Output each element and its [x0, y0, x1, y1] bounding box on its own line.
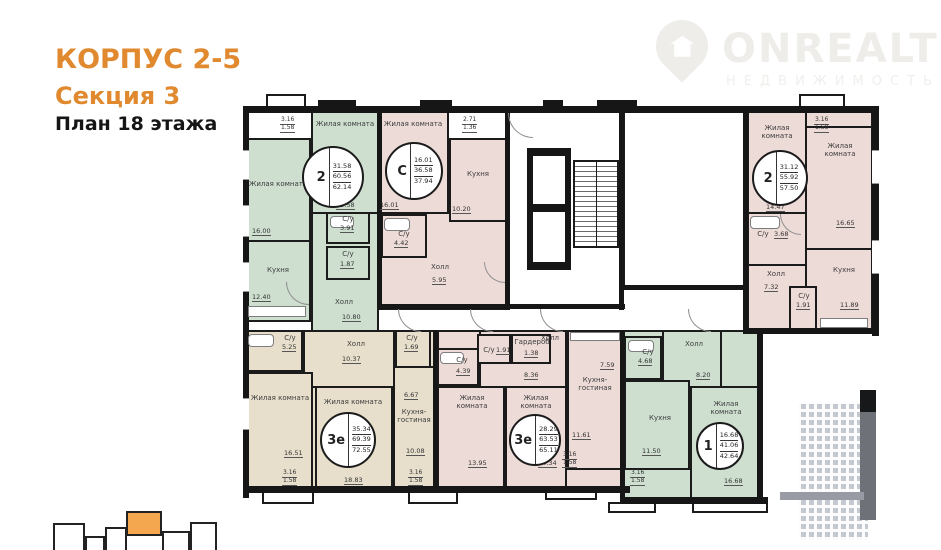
room-area: 10.37	[342, 356, 361, 364]
room-label: Холл	[532, 334, 568, 342]
area-mid: 55.92	[780, 173, 799, 183]
keyplan-outline	[190, 522, 217, 550]
room-area: 1.38	[524, 350, 538, 358]
room-kitchen-living	[567, 330, 623, 470]
wall	[619, 106, 624, 310]
window	[243, 150, 249, 180]
window	[872, 240, 879, 274]
room-label: Холл	[758, 270, 794, 278]
room-area: 8.36	[524, 372, 538, 380]
room-area: 4.42	[394, 240, 408, 248]
apartment-areas: 31.58 60.56 62.14	[330, 162, 352, 192]
wall-right	[872, 106, 879, 336]
apartment-type: 3е	[512, 416, 536, 464]
window	[243, 398, 249, 430]
dimension-label: 3.161.58	[562, 452, 577, 468]
keyplan-outline	[53, 523, 85, 550]
room-area: 16.01	[380, 202, 399, 210]
wall	[757, 334, 763, 504]
apartment-badge: 3е 35.34 69.39 72.55	[320, 412, 376, 468]
apartment-areas: 16.68 41.06 42.64	[717, 431, 739, 461]
dimension-label: 3.161.58	[280, 117, 295, 133]
room-label: С/у	[390, 230, 418, 238]
area-living: 35.34	[352, 425, 371, 435]
room-area: 1.87	[340, 261, 354, 269]
apartment-badge: 1 16.68 41.06 42.64	[696, 422, 744, 470]
room-label: Кухня	[458, 170, 498, 178]
page-title: КОРПУС 2-5	[55, 44, 241, 75]
keyplan-outline	[162, 531, 190, 550]
logo-house-icon	[670, 36, 694, 57]
kitchen-counter-icon	[570, 332, 620, 341]
room-label: Кухня	[247, 266, 309, 274]
bathtub-icon	[248, 334, 274, 347]
room-label: Холл	[676, 340, 712, 348]
apartment-type: 3е	[325, 414, 349, 466]
area-living: 16.68	[720, 431, 739, 441]
room-area: 16.65	[836, 220, 855, 228]
window	[872, 150, 879, 184]
room-label: Жилая комната	[749, 124, 805, 140]
dimension-label: 3.161.58	[408, 470, 423, 486]
room-area: 18.83	[344, 477, 363, 485]
room-label: Кухня-гостиная	[570, 376, 620, 392]
room-area: 1.91	[496, 347, 510, 355]
logo-subtitle: НЕДВИЖИМОСТЬ	[726, 74, 940, 89]
area-mid: 63.53	[539, 435, 558, 445]
apartment-badge: С 16.01 36.58 37.94	[385, 142, 443, 200]
area-mid: 60.56	[333, 172, 352, 182]
room-label: Жилая комната	[320, 398, 386, 406]
apartment-badge: 2 31.58 60.56 62.14	[302, 146, 364, 208]
room-area: 8.20	[696, 372, 710, 380]
page-subtitle-floor: План 18 этажа	[55, 113, 217, 135]
dimension-label: 3.161.58	[630, 470, 645, 486]
room-label: Холл	[326, 298, 362, 306]
apartment-areas: 16.01 36.58 37.94	[411, 156, 433, 186]
room-label: С/у	[634, 348, 662, 356]
room-label: С/у	[448, 356, 476, 364]
area-mid: 69.39	[352, 435, 371, 445]
apartment-type: 1	[702, 424, 717, 468]
floorplan-page: КОРПУС 2-5 Секция 3 План 18 этажа ONREAL…	[0, 0, 941, 550]
door-arc	[398, 309, 421, 332]
wall-top	[243, 106, 878, 113]
room-label: Кухня	[640, 414, 680, 422]
dimension-label: 3.161.58	[282, 470, 297, 486]
room-label: Холл	[422, 263, 458, 271]
kitchen-counter-icon	[248, 306, 306, 317]
room-living	[245, 372, 313, 488]
building-watermark	[798, 402, 868, 540]
wall-bottom	[622, 497, 768, 504]
room-area: 16.51	[284, 450, 303, 458]
room-area: 3.68	[774, 231, 788, 239]
apartment-badge: 3е 28.29 63.53 65.11	[509, 414, 561, 466]
room-label: С/у	[398, 334, 426, 342]
room-label: Жилая комната	[382, 120, 444, 128]
room-label: Жилая комната	[247, 180, 309, 188]
area-mid: 41.06	[720, 441, 739, 451]
room-area: 10.08	[406, 448, 425, 456]
room-area: 11.50	[642, 448, 661, 456]
door-arc	[540, 309, 563, 332]
room-area: 7.32	[764, 284, 778, 292]
room-label: С/у	[276, 334, 304, 342]
wall	[505, 106, 510, 310]
room-area: 11.89	[840, 302, 859, 310]
apartment-areas: 28.29 63.53 65.11	[536, 425, 558, 455]
dimension-label: 2.711.36	[462, 117, 477, 133]
area-total: 37.94	[414, 177, 433, 186]
door-arc	[508, 113, 533, 138]
area-total: 65.11	[539, 446, 558, 455]
room-area: 10.20	[452, 206, 471, 214]
door-arc	[470, 309, 493, 332]
room-label: Жилая комната	[812, 142, 868, 158]
area-living: 28.29	[539, 425, 558, 435]
apartment-areas: 31.12 55.92 57.50	[777, 163, 799, 193]
area-living: 16.01	[414, 156, 433, 166]
wall	[747, 328, 879, 334]
wall-bottom	[243, 486, 630, 493]
area-total: 57.50	[780, 184, 799, 193]
room-label: Жилая комната	[250, 394, 310, 402]
apartment-badge: 2 31.12 55.92 57.50	[752, 150, 808, 206]
area-total: 62.14	[333, 183, 352, 192]
staircase	[573, 160, 619, 248]
door-arc	[688, 309, 711, 332]
elevator-cab	[533, 212, 565, 262]
room-area: 1.91	[796, 302, 810, 310]
room-kitchen	[624, 380, 690, 470]
window	[243, 205, 249, 237]
keyplan-current-section	[126, 511, 162, 536]
room-area: 7.59	[600, 362, 614, 370]
area-total: 72.55	[352, 446, 371, 455]
apartment-areas: 35.34 69.39 72.55	[349, 425, 371, 455]
room-label: Холл	[338, 340, 374, 348]
room-label: С/у	[334, 215, 362, 223]
wall	[743, 106, 748, 334]
wall	[621, 285, 748, 290]
room-label: Жилая комната	[508, 394, 564, 410]
room-area: 10.80	[342, 314, 361, 322]
area-total: 42.64	[720, 452, 739, 461]
room-label: С/у	[792, 292, 816, 300]
room-area: 11.61	[572, 432, 591, 440]
room-area: 3.91	[340, 225, 354, 233]
dimension-label: 3.161.58	[814, 117, 829, 133]
room-area: 1.69	[404, 344, 418, 352]
room-area: 5.95	[432, 277, 446, 285]
elevator-cab	[533, 156, 565, 204]
room-area: 12.40	[252, 294, 271, 302]
room-area: 16.68	[724, 478, 743, 486]
area-mid: 36.58	[414, 166, 433, 176]
bathtub-icon	[750, 216, 780, 229]
room-area: 13.95	[468, 460, 487, 468]
room-area: 4.39	[456, 368, 470, 376]
common-room	[623, 108, 747, 288]
room-label: Кухня-гостиная	[394, 408, 434, 424]
room-area: 6.67	[404, 392, 418, 400]
room-label: С/у	[752, 230, 774, 238]
room-area: 4.68	[638, 358, 652, 366]
wall	[620, 330, 625, 502]
logo-pin-icon	[645, 9, 719, 83]
area-living: 31.12	[780, 163, 799, 173]
apartment-type: С	[395, 144, 411, 198]
room-label: Жилая комната	[444, 394, 500, 410]
apartment-type: 2	[315, 148, 330, 206]
building-watermark-tower-cap	[860, 390, 876, 412]
keyplan-outline	[85, 536, 105, 550]
keyplan-outline	[105, 527, 127, 550]
kitchen-counter-icon	[820, 318, 868, 328]
area-living: 31.58	[333, 162, 352, 172]
room-label: Жилая комната	[314, 120, 376, 128]
room-label: С/у	[334, 250, 362, 258]
room-area: 5.25	[282, 344, 296, 352]
page-subtitle-section: Секция 3	[55, 82, 180, 110]
room-label: Жилая комната	[698, 400, 754, 416]
logo-text: ONREALT	[722, 26, 939, 72]
building-watermark-crane	[780, 492, 864, 500]
room-area: 16.00	[252, 228, 271, 236]
room-label: Кухня	[824, 266, 864, 274]
apartment-type: 2	[762, 152, 777, 204]
